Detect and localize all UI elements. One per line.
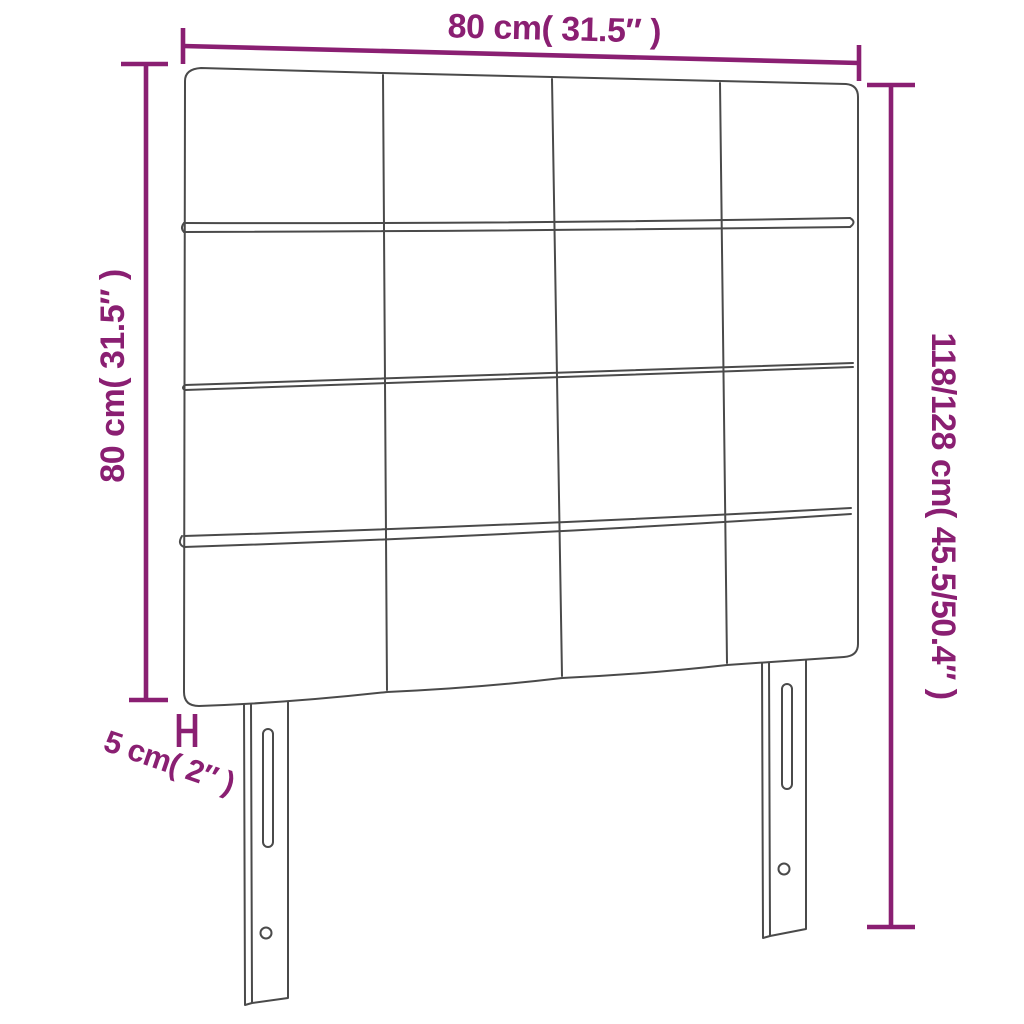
row-seam-1-left-curl bbox=[182, 223, 184, 232]
height-left-label: 80 cm( 31.5″ ) bbox=[94, 269, 132, 482]
headboard-left-leg bbox=[244, 698, 288, 1005]
depth-label: 5 cm( 2″ ) bbox=[100, 723, 240, 800]
dimension-height-right bbox=[867, 85, 915, 927]
headboard-figure bbox=[180, 68, 858, 1005]
depth-bracket-icon bbox=[179, 714, 195, 747]
right-leg-side-edge bbox=[769, 659, 770, 935]
width-top-label: 80 cm( 31.5″ ) bbox=[447, 7, 661, 51]
headboard-dimension-diagram: 80 cm( 31.5″ ) 80 cm( 31.5″ ) 118/128 cm… bbox=[0, 0, 1024, 1024]
left-leg-side-edge bbox=[251, 703, 252, 1002]
diagram-canvas: 80 cm( 31.5″ ) 80 cm( 31.5″ ) 118/128 cm… bbox=[0, 0, 1024, 1024]
headboard-right-leg bbox=[762, 651, 806, 938]
height-right-label: 118/128 cm( 45.5/50.4″ ) bbox=[924, 332, 962, 699]
top-dim-line bbox=[183, 46, 859, 63]
